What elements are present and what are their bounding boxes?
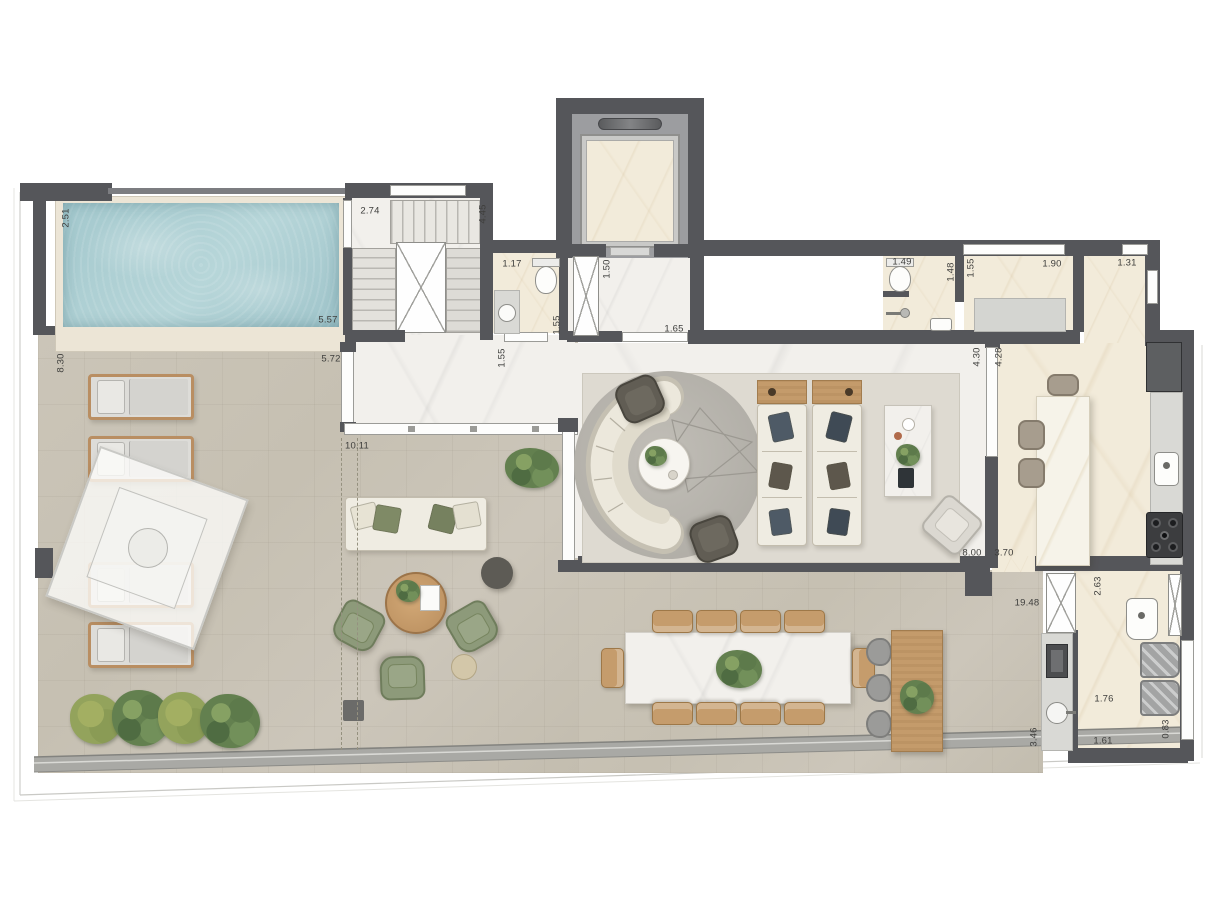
shower-arm <box>886 312 901 315</box>
dimension-label: 1.55 <box>552 315 563 334</box>
kitchen-stool <box>1018 420 1045 450</box>
bar-stool <box>866 710 892 738</box>
sofa <box>812 404 862 546</box>
laundry-basin <box>1126 598 1158 640</box>
dining-centerpiece <box>716 650 762 688</box>
dining-chair <box>601 648 624 688</box>
dimension-label: 1.65 <box>664 324 683 335</box>
dining-chair <box>652 702 693 725</box>
dimension-label: 10.11 <box>345 441 369 452</box>
dimension-label: 1.31 <box>1117 258 1136 269</box>
dimension-label: 1.90 <box>1042 259 1061 270</box>
cooktop <box>1146 512 1183 558</box>
dimension-label: 1.61 <box>1093 736 1112 747</box>
floor-plan: 2.515.572.744.451.171.501.551.651.551.49… <box>0 0 1213 913</box>
decor-cup <box>894 432 902 440</box>
dining-chair <box>696 610 737 633</box>
pillow <box>767 411 794 443</box>
seat-line <box>762 451 802 452</box>
basin-faucet <box>1138 612 1145 619</box>
dimension-label: 3.46 <box>1029 727 1040 746</box>
dimension-label: 1.55 <box>497 348 508 367</box>
burner <box>1151 542 1161 552</box>
dimension-label: 4.30 <box>972 347 983 366</box>
bath-sink <box>498 304 516 322</box>
pillow <box>826 461 851 490</box>
refrigerator <box>1146 342 1182 392</box>
decor-dish <box>668 470 678 480</box>
dimension-label: 5.72 <box>321 354 340 365</box>
service-sink-faucet <box>1066 711 1076 714</box>
dining-chair <box>740 610 781 633</box>
dimension-label: 2.63 <box>1093 576 1104 595</box>
dining-chair <box>740 702 781 725</box>
appliance-front <box>1051 650 1063 672</box>
seat-line <box>817 497 857 498</box>
sofa <box>757 404 807 546</box>
wc-basin <box>930 318 952 331</box>
sofa-console <box>757 380 807 404</box>
bar-plant <box>900 680 934 714</box>
remote-tray <box>898 468 914 488</box>
kitchen-stool <box>1018 458 1045 488</box>
seat-line <box>762 497 802 498</box>
dimension-label: 1.48 <box>946 262 957 281</box>
sideboard-plant <box>896 444 920 466</box>
console-handle <box>845 388 853 396</box>
dining-chair <box>784 702 825 725</box>
pillow <box>768 461 793 490</box>
dimension-label: 8.30 <box>56 353 67 372</box>
burner <box>1168 518 1178 528</box>
burner-knob <box>1160 531 1169 540</box>
dimension-label: 1.17 <box>502 259 521 270</box>
kitchen-sink <box>1154 452 1179 486</box>
coffee-table <box>638 438 690 490</box>
kitchen-stool <box>1047 374 1079 396</box>
dining-chair <box>652 610 693 633</box>
dimension-label: 4.45 <box>478 204 489 223</box>
dimension-label: 2.74 <box>360 206 379 217</box>
service-appliance <box>1046 644 1068 678</box>
pillow <box>826 508 850 537</box>
dimension-label: 1.76 <box>1094 694 1113 705</box>
washing-machine <box>1140 642 1180 678</box>
closet-cabinet <box>974 298 1066 332</box>
seat-line <box>817 451 857 452</box>
sofa-console <box>812 380 862 404</box>
coffee-table-plant <box>645 446 667 466</box>
toilet-bowl <box>535 266 557 294</box>
dimension-label: 8.00 <box>962 548 981 559</box>
dimension-label: 0.83 <box>1161 719 1172 738</box>
bar-stool <box>866 638 892 666</box>
pillow <box>825 411 853 443</box>
shower-drain <box>900 308 910 318</box>
dimension-label: 1.50 <box>602 259 613 278</box>
dining-chair <box>784 610 825 633</box>
dimension-label: 2.51 <box>61 208 72 227</box>
dimension-label: 1.55 <box>966 258 977 277</box>
dining-chair <box>696 702 737 725</box>
curved-sofa <box>0 0 1213 913</box>
dimension-label: 3.70 <box>994 548 1013 559</box>
dimension-label: 1.49 <box>892 257 911 268</box>
pillow <box>768 508 792 537</box>
toilet-bowl <box>889 266 911 292</box>
burner <box>1151 518 1161 528</box>
burner <box>1168 542 1178 552</box>
dimension-label: 4.28 <box>994 347 1005 366</box>
console-handle <box>768 388 776 396</box>
dimension-label: 19.48 <box>1015 598 1040 609</box>
dimension-label: 5.57 <box>318 315 337 326</box>
service-sink <box>1046 702 1068 724</box>
dryer <box>1140 680 1180 716</box>
decor-dish <box>902 418 915 431</box>
sink-faucet <box>1163 462 1170 469</box>
bar-stool <box>866 674 892 702</box>
